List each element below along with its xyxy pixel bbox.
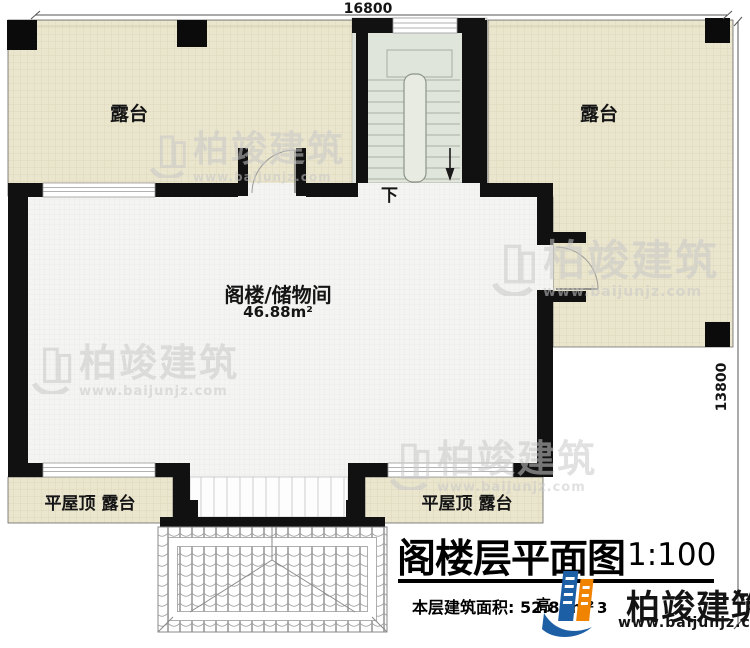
brand-logo-icon <box>540 565 602 639</box>
stair-newel <box>404 74 426 182</box>
terrace-left-label: 露台 <box>110 99 148 126</box>
bay-railing <box>190 477 348 517</box>
dimension-top-label: 16800 <box>338 1 398 17</box>
flat-roof-terrace-right-label: 平屋顶 露台 <box>402 489 532 514</box>
tiled-roof <box>158 527 387 632</box>
terrace-right-label: 露台 <box>580 99 618 126</box>
floor-plan-page: 柏竣建筑 www.baijunjz.com 柏竣建筑 www.baijunjz.… <box>0 0 750 648</box>
brand-logo-url: www.baijunjz.com <box>618 615 750 631</box>
stair-down-label: 下 <box>381 181 398 206</box>
attic-room-area: 46.88m² <box>198 303 358 321</box>
flat-roof-terrace-left-label: 平屋顶 露台 <box>25 489 155 514</box>
brand-logo: 柏竣建筑 www.baijunjz.com <box>534 563 750 643</box>
attic-room-floor <box>8 183 553 477</box>
dimension-right-label: 13800 <box>714 357 730 417</box>
